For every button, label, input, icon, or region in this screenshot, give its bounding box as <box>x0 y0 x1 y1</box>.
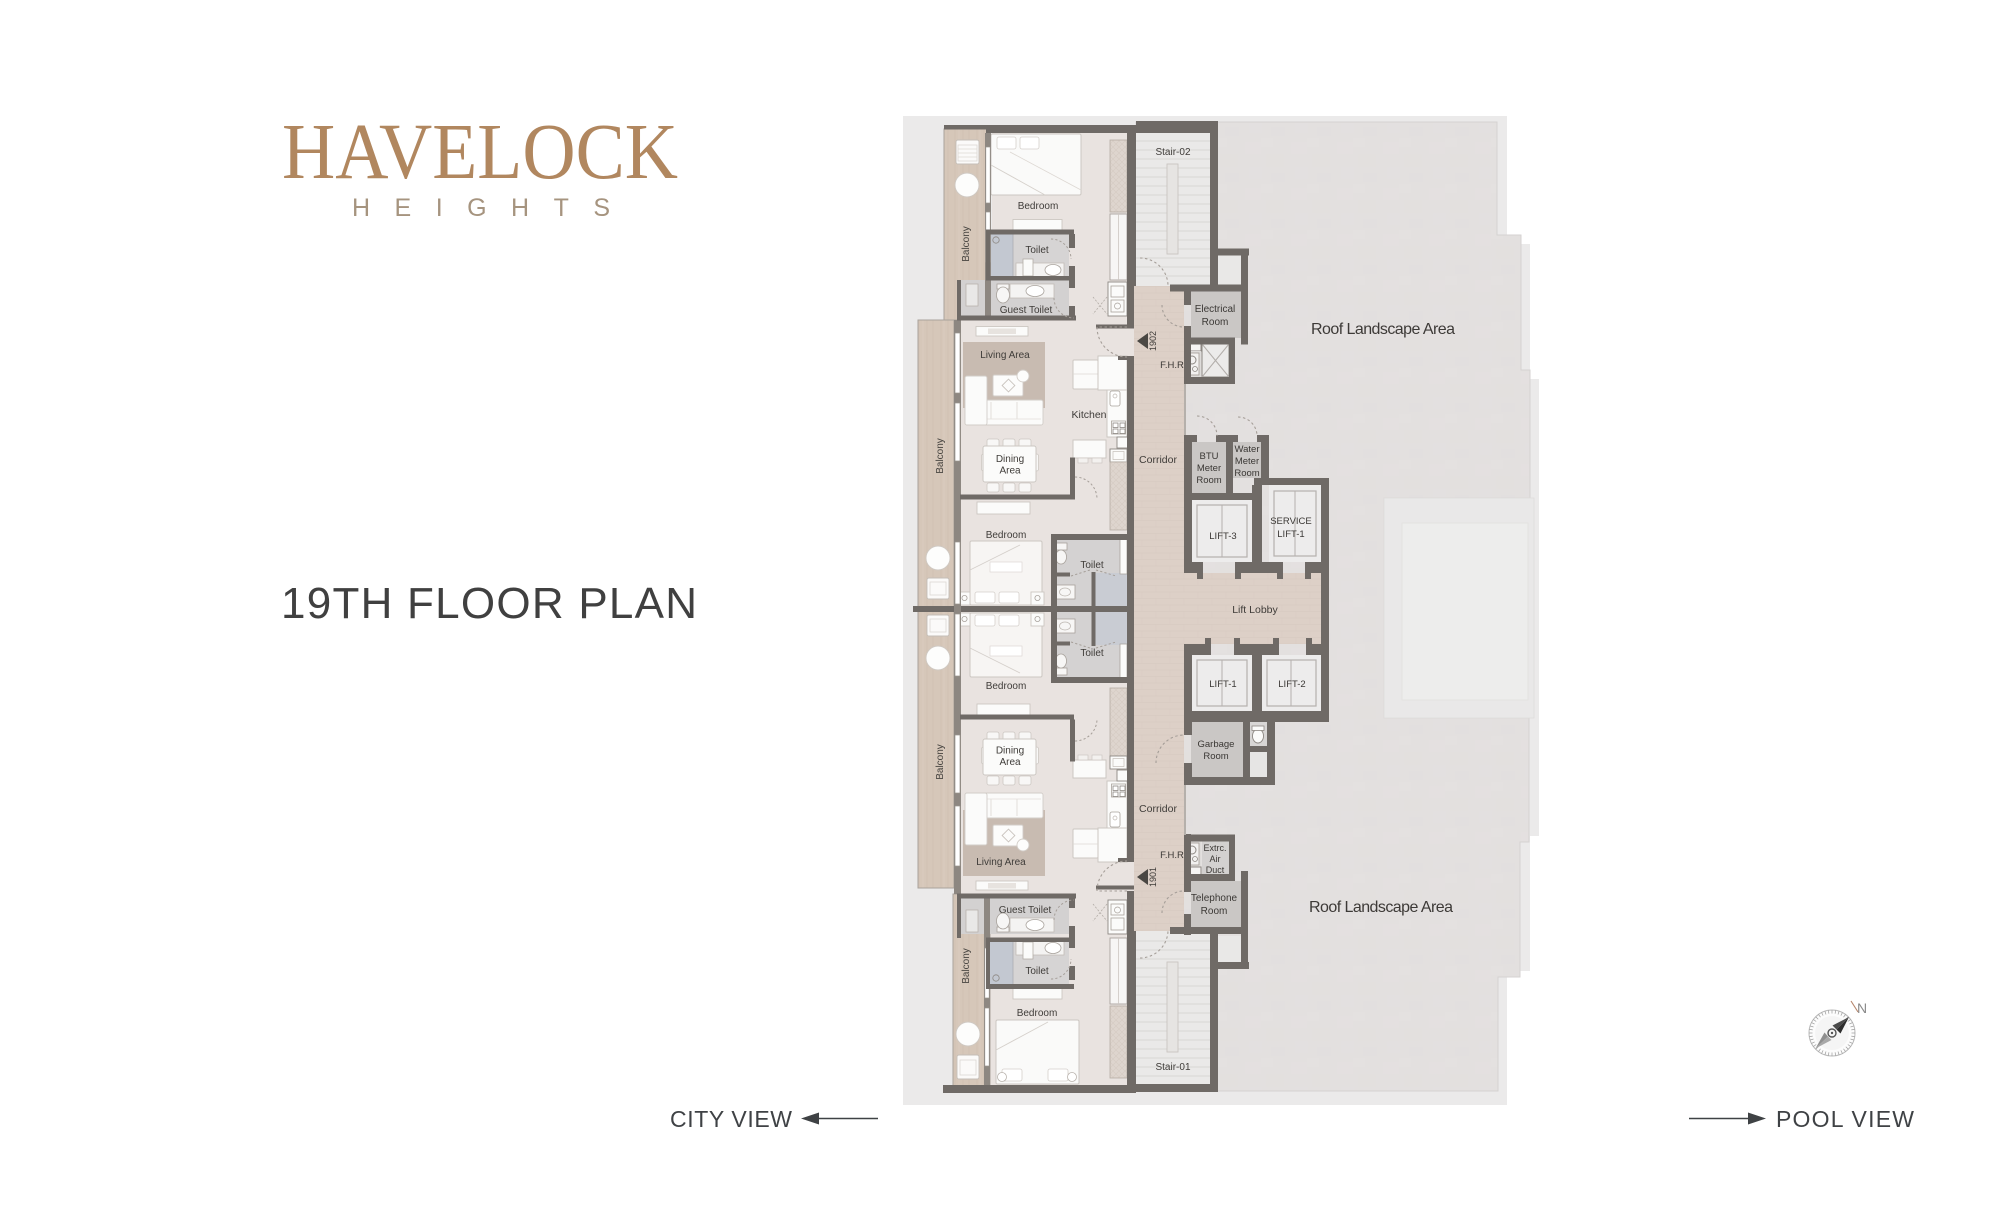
svg-text:Room: Room <box>1203 751 1228 762</box>
svg-text:N: N <box>1857 1000 1867 1016</box>
svg-text:Balcony: Balcony <box>961 948 972 984</box>
svg-text:F.H.R: F.H.R <box>1160 850 1184 861</box>
svg-text:Garbage: Garbage <box>1198 739 1235 750</box>
svg-text:POOL VIEW: POOL VIEW <box>1776 1106 1914 1132</box>
svg-text:Bedroom: Bedroom <box>986 681 1027 692</box>
svg-text:Air: Air <box>1210 854 1221 864</box>
svg-text:Toilet: Toilet <box>1080 648 1104 659</box>
svg-text:Living Area: Living Area <box>976 857 1026 868</box>
svg-text:Roof Landscape Area: Roof Landscape Area <box>1311 321 1455 338</box>
svg-text:Balcony: Balcony <box>935 744 946 780</box>
svg-text:Area: Area <box>999 466 1021 477</box>
svg-text:Electrical: Electrical <box>1195 304 1236 315</box>
svg-text:Roof Landscape Area: Roof Landscape Area <box>1309 899 1453 916</box>
svg-text:Lift Lobby: Lift Lobby <box>1232 604 1278 616</box>
svg-text:LIFT-3: LIFT-3 <box>1209 531 1236 542</box>
svg-text:19TH FLOOR PLAN: 19TH FLOOR PLAN <box>281 579 697 628</box>
svg-text:1902: 1902 <box>1148 331 1158 351</box>
svg-text:Stair-01: Stair-01 <box>1155 1062 1190 1073</box>
svg-text:Water: Water <box>1235 444 1260 455</box>
svg-text:Toilet: Toilet <box>1080 560 1104 571</box>
svg-text:Balcony: Balcony <box>935 438 946 474</box>
svg-text:Stair-02: Stair-02 <box>1155 147 1190 158</box>
svg-text:Telephone: Telephone <box>1191 893 1238 904</box>
svg-text:Bedroom: Bedroom <box>1017 1008 1058 1019</box>
svg-text:CITY VIEW: CITY VIEW <box>670 1106 792 1132</box>
svg-text:Corridor: Corridor <box>1139 454 1177 466</box>
svg-text:Toilet: Toilet <box>1025 245 1049 256</box>
svg-text:Room: Room <box>1201 906 1228 917</box>
svg-text:Guest Toilet: Guest Toilet <box>1000 305 1053 316</box>
svg-text:Meter: Meter <box>1197 463 1221 474</box>
svg-text:Duct: Duct <box>1206 865 1225 875</box>
svg-text:LIFT-1: LIFT-1 <box>1277 529 1304 540</box>
svg-text:Dining: Dining <box>996 746 1024 757</box>
svg-text:Room: Room <box>1234 468 1259 479</box>
svg-text:Balcony: Balcony <box>961 226 972 262</box>
svg-text:Dining: Dining <box>996 454 1024 465</box>
svg-text:Extrc.: Extrc. <box>1203 843 1226 853</box>
svg-text:F.H.R: F.H.R <box>1160 360 1184 371</box>
svg-text:HAVELOCK: HAVELOCK <box>282 109 678 196</box>
svg-text:LIFT-2: LIFT-2 <box>1278 679 1305 690</box>
svg-text:Toilet: Toilet <box>1025 966 1049 977</box>
svg-text:Room: Room <box>1202 317 1229 328</box>
svg-text:Room: Room <box>1196 475 1221 486</box>
svg-text:Living Area: Living Area <box>980 350 1030 361</box>
svg-text:Area: Area <box>999 757 1021 768</box>
svg-text:Kitchen: Kitchen <box>1071 409 1106 421</box>
svg-text:Bedroom: Bedroom <box>986 530 1027 541</box>
svg-text:Bedroom: Bedroom <box>1018 201 1059 212</box>
svg-text:SERVICE: SERVICE <box>1270 516 1312 527</box>
svg-text:LIFT-1: LIFT-1 <box>1209 679 1236 690</box>
svg-text:1901: 1901 <box>1148 867 1158 887</box>
svg-text:BTU: BTU <box>1200 451 1219 462</box>
svg-text:Corridor: Corridor <box>1139 803 1177 815</box>
svg-text:Meter: Meter <box>1235 456 1259 467</box>
